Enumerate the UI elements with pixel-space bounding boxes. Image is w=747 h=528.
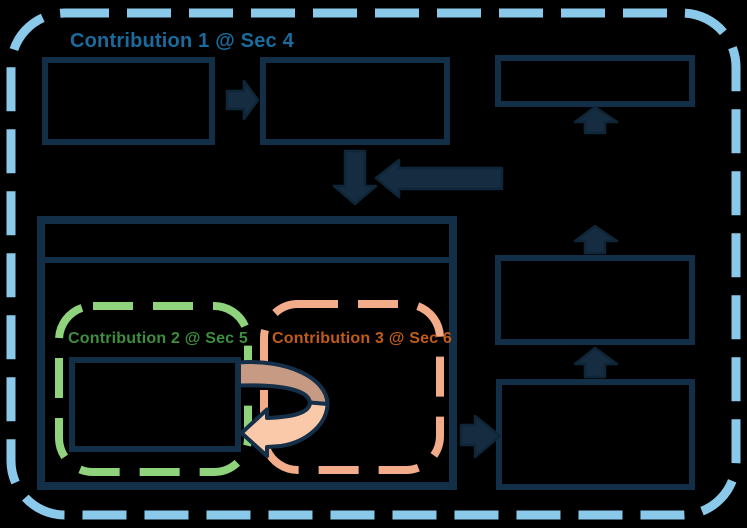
contribution1-group-border [11, 13, 736, 515]
flow-box-top-middle [263, 60, 447, 142]
contribution2-label: Contribution 2 @ Sec 5 [68, 330, 248, 347]
arrow-down-icon [334, 151, 376, 204]
contribution3-label: Contribution 3 @ Sec 6 [272, 330, 452, 347]
curved-uturn-arrow-head [242, 403, 328, 457]
curved-uturn-arrow-top [239, 362, 328, 404]
arrow-right-icon [227, 81, 258, 119]
flow-box-middle-right [498, 258, 692, 342]
diagram-canvas: Contribution 1 @ Sec 4 Contribution 2 @ … [0, 0, 747, 528]
arrow-up-top-icon [575, 107, 617, 133]
flow-box-bottom-right [499, 382, 692, 487]
flow-box-inner-green [72, 360, 238, 449]
contribution1-label: Contribution 1 @ Sec 4 [70, 30, 295, 52]
arrow-left-icon [376, 160, 502, 197]
flow-box-top-left [45, 60, 212, 142]
flow-box-top-right [498, 58, 692, 104]
arrow-up-bottom-icon [575, 348, 617, 377]
arrow-right-bottom-icon [461, 416, 500, 457]
arrow-up-middle-icon [575, 226, 617, 253]
